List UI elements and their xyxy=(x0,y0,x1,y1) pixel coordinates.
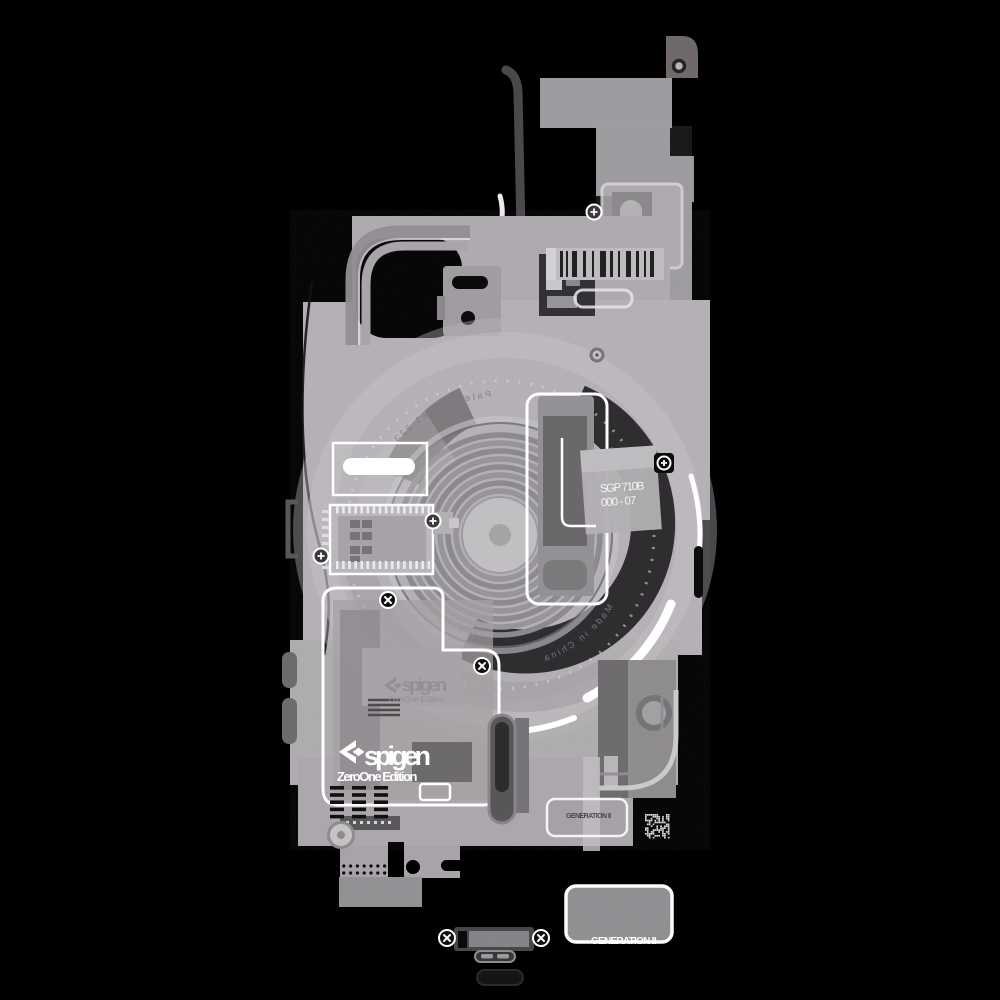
callout-box-a xyxy=(333,443,427,495)
usb-port xyxy=(477,970,523,985)
screw-icon xyxy=(426,514,441,529)
model-number-label: 000 - 07 xyxy=(600,495,637,509)
edition-label: ZeroOne Edition xyxy=(337,769,418,784)
barcode xyxy=(546,248,664,280)
volume-button xyxy=(282,698,297,744)
x-marker-icon xyxy=(474,658,490,674)
teardown-artwork: Spigen Patent 1.863.223 Made in China iP… xyxy=(0,0,1000,1000)
x-marker-icon xyxy=(380,592,396,608)
x-marker-icon xyxy=(439,930,455,946)
screw-icon xyxy=(591,349,603,361)
edition-label-faded: ZeroOne Edition xyxy=(388,694,446,704)
spigen-wordmark-faded: spigen xyxy=(402,675,448,695)
generation-tag-label: GENERATION II xyxy=(566,813,612,820)
screw-boss-icon xyxy=(639,698,669,728)
corner-screw-hole-icon xyxy=(674,61,685,72)
volume-button xyxy=(282,652,297,688)
spigen-logo-faded: spigen ZeroOne Edition xyxy=(384,675,448,704)
taptic-module xyxy=(489,715,529,823)
generation-footer-label: GENERATION II xyxy=(591,936,657,947)
xray-illustration: Spigen Patent 1.863.223 Made in China iP… xyxy=(0,0,1000,1000)
generation-box: GENERATION II xyxy=(566,886,672,947)
x-marker-icon xyxy=(533,930,549,946)
screw-icon xyxy=(314,549,329,564)
callout-pill xyxy=(343,458,415,475)
screw-icon xyxy=(587,205,602,220)
spigen-wordmark: spigen xyxy=(364,741,432,771)
